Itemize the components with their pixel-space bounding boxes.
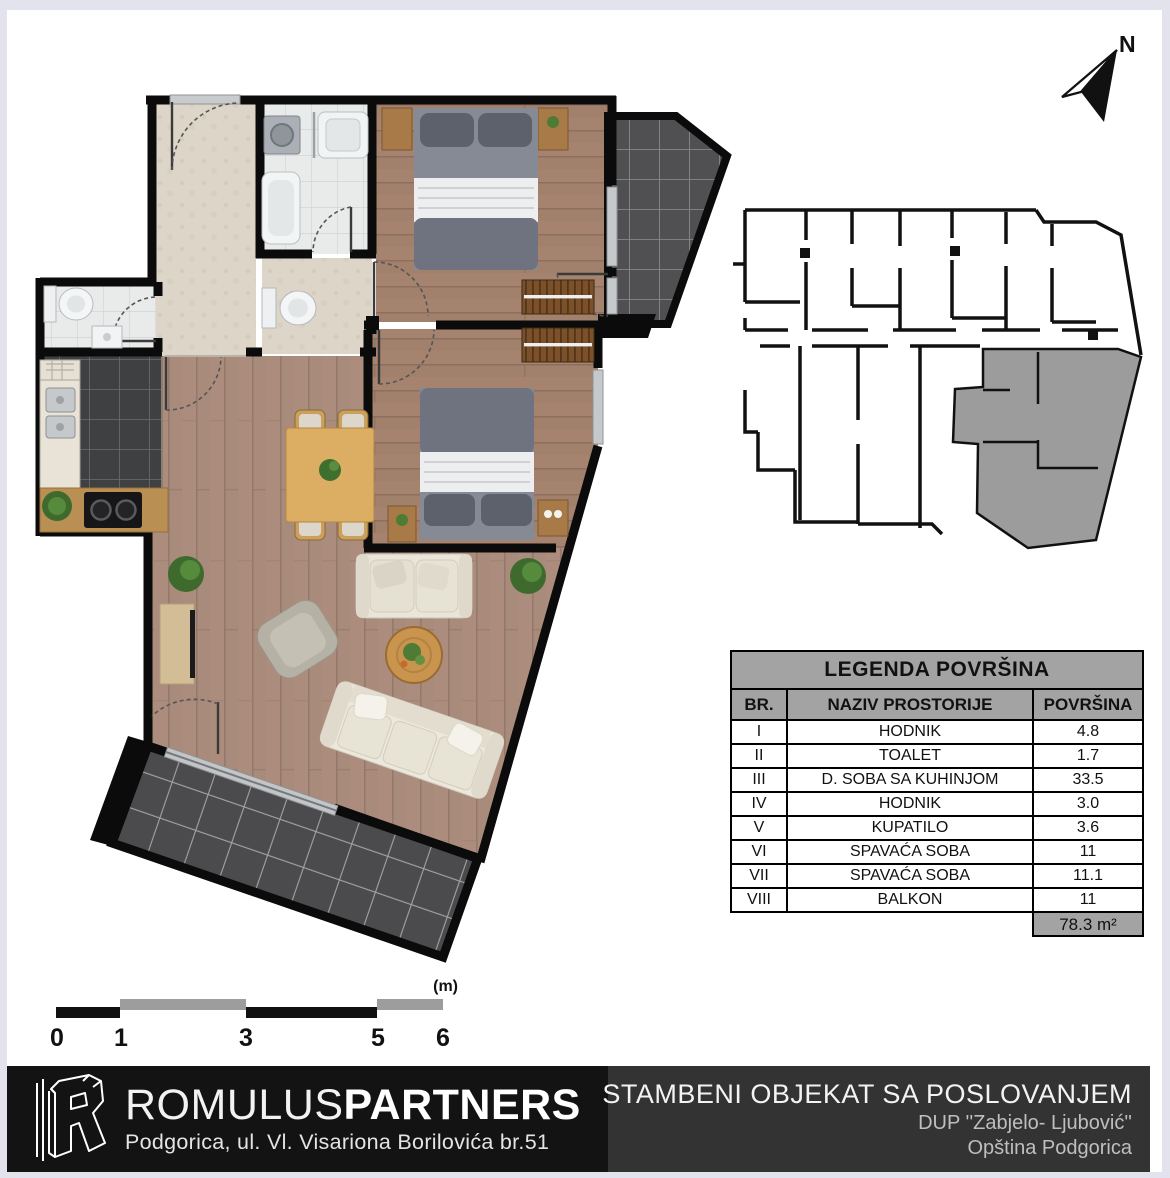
room-area: 11.1 bbox=[1033, 864, 1143, 888]
page: N bbox=[0, 0, 1170, 1178]
legend-row: II TOALET 1.7 bbox=[731, 744, 1143, 768]
scale-label: 3 bbox=[239, 1024, 253, 1052]
room-area: 1.7 bbox=[1033, 744, 1143, 768]
room-number: V bbox=[731, 816, 787, 840]
room-number: I bbox=[731, 720, 787, 744]
double-bed bbox=[420, 388, 534, 540]
room-number: IV bbox=[731, 792, 787, 816]
project-title: STAMBENI OBJEKAT SA POSLOVANJEM bbox=[602, 1079, 1132, 1110]
legend-row: IV HODNIK 3.0 bbox=[731, 792, 1143, 816]
floor-plan-svg: N bbox=[0, 0, 1170, 1178]
legend-row: III D. SOBA SA KUHINJOM 33.5 bbox=[731, 768, 1143, 792]
brand-name-bold: PARTNERS bbox=[344, 1081, 581, 1129]
legend-col-povrsina: POVRŠINA bbox=[1033, 689, 1143, 720]
brand-name: ROMULUSPARTNERS bbox=[125, 1083, 581, 1128]
bedroom1-window bbox=[607, 187, 617, 266]
plant bbox=[510, 558, 546, 594]
legend-title: LEGENDA POVRŠINA bbox=[731, 651, 1143, 689]
north-label: N bbox=[1119, 31, 1136, 57]
nightstand bbox=[538, 500, 568, 536]
legend-header-row: BR. NAZIV PROSTORIJE POVRŠINA bbox=[731, 689, 1143, 720]
room-name: SPAVAĆA SOBA bbox=[787, 840, 1033, 864]
brand-text: ROMULUSPARTNERS Podgorica, ul. Vl. Visar… bbox=[125, 1083, 581, 1155]
plant bbox=[168, 556, 204, 592]
scale-label: 5 bbox=[371, 1024, 385, 1052]
double-bed bbox=[414, 108, 538, 270]
room-name: HODNIK bbox=[787, 720, 1033, 744]
hallway-floor bbox=[262, 258, 372, 354]
legend-row: I HODNIK 4.8 bbox=[731, 720, 1143, 744]
balcony bbox=[608, 116, 727, 324]
legend-col-naziv: NAZIV PROSTORIJE bbox=[787, 689, 1033, 720]
bedroom2-window bbox=[593, 370, 603, 444]
wc-tank bbox=[262, 288, 276, 328]
scale-label: 1 bbox=[114, 1024, 128, 1052]
column bbox=[366, 316, 379, 330]
main-floor-plan bbox=[40, 95, 727, 957]
room-number: VIII bbox=[731, 888, 787, 912]
room-name: KUPATILO bbox=[787, 816, 1033, 840]
room-name: BALKON bbox=[787, 888, 1033, 912]
project-dup: DUP ''Zabjelo- Ljubović'' bbox=[918, 1112, 1132, 1135]
total-area: 78.3 m² bbox=[1033, 912, 1143, 936]
room-area: 33.5 bbox=[1033, 768, 1143, 792]
room-number: VI bbox=[731, 840, 787, 864]
nightstand bbox=[382, 108, 412, 150]
brand-name-light: ROMULUS bbox=[125, 1081, 344, 1129]
tv-console bbox=[160, 604, 194, 684]
project-municipality: Opština Podgorica bbox=[967, 1137, 1132, 1160]
balcony-door-sill bbox=[607, 278, 617, 314]
room-area: 3.6 bbox=[1033, 816, 1143, 840]
key-plan bbox=[733, 210, 1141, 548]
room-name: SPAVAĆA SOBA bbox=[787, 864, 1033, 888]
scale-unit: (m) bbox=[433, 978, 458, 995]
room-name: HODNIK bbox=[787, 792, 1033, 816]
room-name: D. SOBA SA KUHINJOM bbox=[787, 768, 1033, 792]
footer-project-block: STAMBENI OBJEKAT SA POSLOVANJEM DUP ''Za… bbox=[608, 1066, 1150, 1172]
room-number: II bbox=[731, 744, 787, 768]
wall-chunk bbox=[598, 314, 656, 338]
tv bbox=[190, 610, 195, 678]
romulus-logo-icon bbox=[23, 1071, 115, 1167]
scale-label: 6 bbox=[436, 1024, 450, 1052]
brand-address: Podgorica, ul. Vl. Visariona Borilovića … bbox=[125, 1130, 581, 1155]
coffee-table bbox=[386, 627, 442, 683]
footer-brand-block: ROMULUSPARTNERS Podgorica, ul. Vl. Visar… bbox=[7, 1066, 608, 1172]
room-area: 3.0 bbox=[1033, 792, 1143, 816]
legend-col-br: BR. bbox=[731, 689, 787, 720]
room-area: 11 bbox=[1033, 888, 1143, 912]
wc-tank bbox=[44, 286, 56, 322]
legend-row: VIII BALKON 11 bbox=[731, 888, 1143, 912]
highlighted-unit bbox=[953, 349, 1141, 548]
loveseat-sofa bbox=[356, 554, 472, 618]
nightstand bbox=[538, 108, 568, 150]
legend-row: VII SPAVAĆA SOBA 11.1 bbox=[731, 864, 1143, 888]
room-area: 4.8 bbox=[1033, 720, 1143, 744]
dining-set bbox=[286, 410, 374, 540]
scale-bar: 0 1 3 5 6 (m) bbox=[50, 978, 458, 1052]
scale-label: 0 bbox=[50, 1024, 64, 1052]
legend-table: LEGENDA POVRŠINA BR. NAZIV PROSTORIJE PO… bbox=[730, 650, 1144, 937]
legend-row: V KUPATILO 3.6 bbox=[731, 816, 1143, 840]
room-number: VII bbox=[731, 864, 787, 888]
room-name: TOALET bbox=[787, 744, 1033, 768]
north-arrow: N bbox=[1062, 31, 1136, 122]
legend-row: VI SPAVAĆA SOBA 11 bbox=[731, 840, 1143, 864]
room-number: III bbox=[731, 768, 787, 792]
legend-total-row: 78.3 m² bbox=[731, 912, 1143, 936]
room-area: 11 bbox=[1033, 840, 1143, 864]
